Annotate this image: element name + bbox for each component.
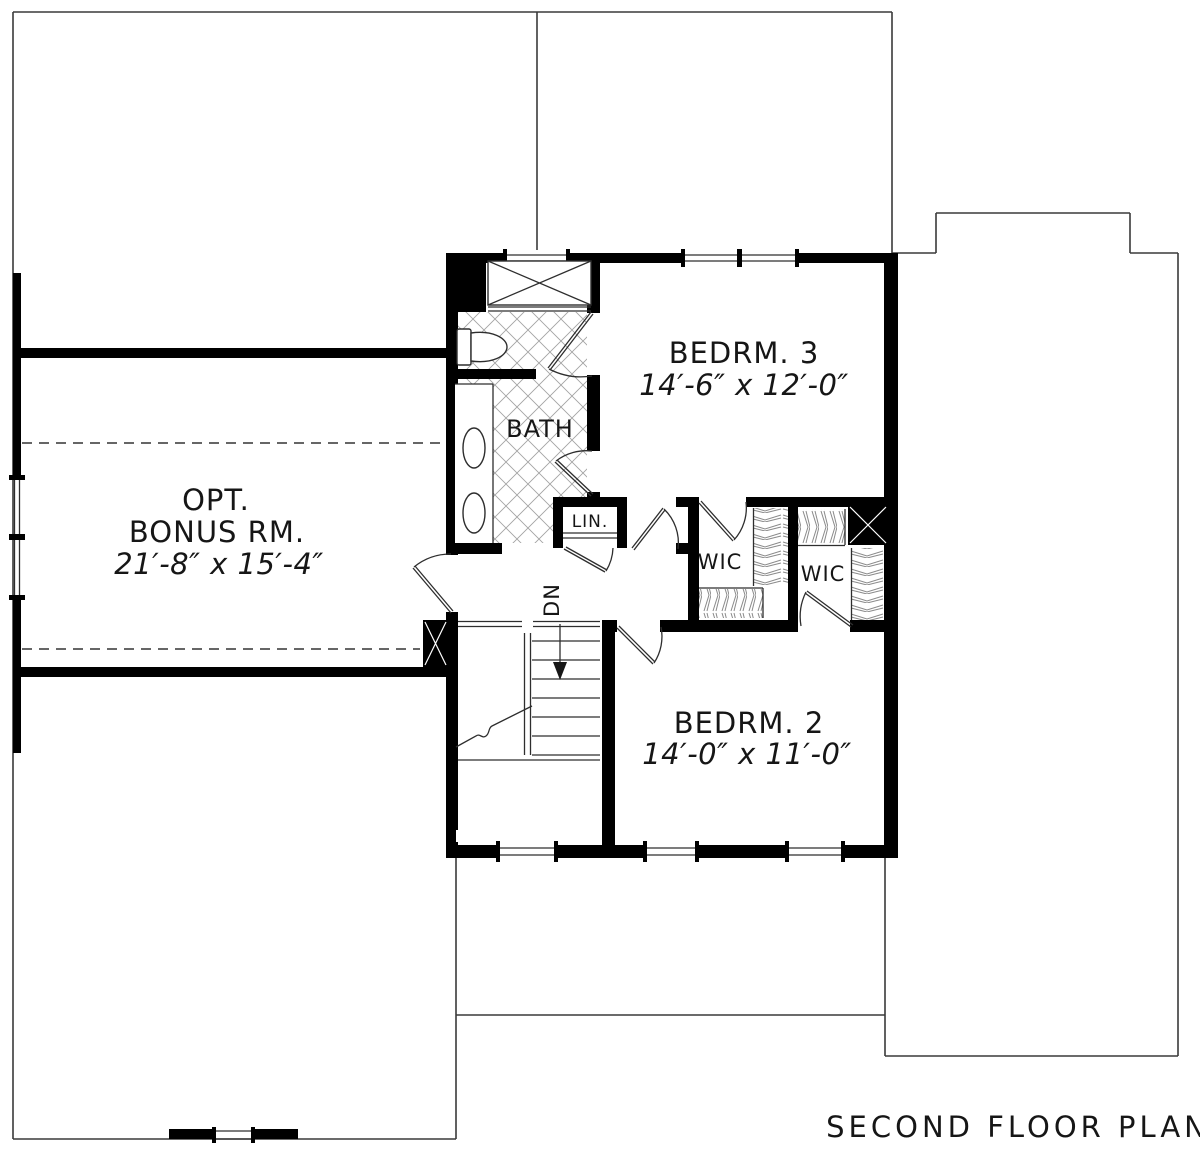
plan-title: SECOND FLOOR PLAN	[826, 1110, 1200, 1144]
linen-label: LIN.	[572, 512, 609, 532]
stair-landing-seat	[456, 830, 601, 842]
bedroom2-label: BEDRM. 2	[674, 706, 825, 740]
bath-label: BATH	[506, 415, 574, 443]
bonus-room-dimensions: 21′-8″ x 15′-4″	[114, 547, 324, 581]
bedroom2-dimensions: 14′-0″ x 11′-0″	[642, 737, 852, 771]
floor-plan-drawing: OPT. BONUS RM. 21′-8″ x 15′-4″ BEDRM. 3 …	[0, 0, 1200, 1160]
vanity	[455, 384, 493, 543]
bath-chase-box	[452, 258, 486, 312]
wic2-label: WIC	[801, 562, 846, 586]
bonus-room-label-line2: BONUS RM.	[129, 515, 305, 549]
floor-plan-page: OPT. BONUS RM. 21′-8″ x 15′-4″ BEDRM. 3 …	[0, 0, 1200, 1160]
bedroom3-label: BEDRM. 3	[669, 336, 820, 370]
stair-chase-box	[423, 620, 448, 667]
wic-chase-box	[848, 505, 888, 545]
stair-direction-label: DN	[540, 583, 564, 617]
shower	[488, 261, 591, 311]
bedroom3-dimensions: 14′-6″ x 12′-0″	[639, 368, 849, 402]
wic1-label: WIC	[698, 550, 743, 574]
bonus-room-label-line1: OPT.	[182, 483, 250, 517]
